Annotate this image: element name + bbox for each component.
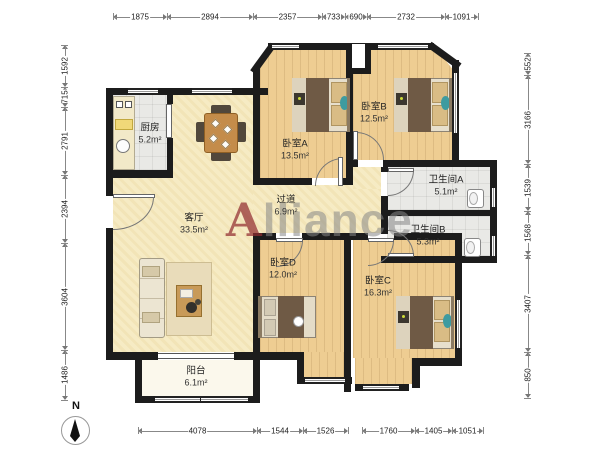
cutting-board bbox=[115, 119, 133, 130]
dim-top-0: 1875 bbox=[113, 12, 167, 22]
dim-right-1: 3166 bbox=[523, 75, 533, 164]
dining-table bbox=[204, 113, 238, 153]
tray bbox=[180, 289, 193, 298]
dim-tick bbox=[61, 87, 68, 88]
dim-tick bbox=[348, 427, 349, 434]
dim-bottom-2: 1526 bbox=[303, 426, 348, 436]
dim-tick bbox=[478, 13, 479, 20]
room-bedroom-a-label: 卧室A13.5m² bbox=[281, 139, 309, 162]
dim-left-0: 1592 bbox=[60, 45, 70, 87]
wall bbox=[455, 348, 462, 366]
wall bbox=[106, 170, 173, 178]
room-bedroom-c-floor bbox=[355, 358, 412, 384]
window bbox=[155, 396, 248, 403]
dim-top-1: 2894 bbox=[167, 12, 253, 22]
wall bbox=[135, 396, 155, 403]
wall bbox=[412, 358, 420, 388]
wall bbox=[383, 160, 497, 167]
dim-tick bbox=[113, 13, 114, 20]
dim-tick bbox=[303, 427, 304, 434]
dim-tick bbox=[415, 427, 416, 434]
dim-bottom-3: 1760 bbox=[362, 426, 415, 436]
window bbox=[452, 73, 459, 133]
dim-tick bbox=[257, 427, 258, 434]
room-hallway-label: 过道6.9m² bbox=[274, 195, 297, 218]
tv-light bbox=[298, 97, 301, 100]
wall bbox=[344, 358, 351, 392]
bath-a-door-leaf bbox=[388, 168, 414, 172]
wall bbox=[490, 207, 497, 236]
window bbox=[490, 188, 497, 207]
dim-tick bbox=[253, 13, 254, 20]
window bbox=[378, 43, 428, 50]
dim-tick bbox=[61, 175, 68, 176]
headboard bbox=[258, 296, 262, 338]
dim-tick bbox=[61, 243, 68, 244]
north-arrow-icon bbox=[70, 419, 80, 436]
dim-tick bbox=[524, 255, 531, 256]
dim-tick bbox=[167, 13, 168, 20]
wall bbox=[253, 352, 303, 360]
wall bbox=[234, 352, 260, 360]
dim-tick bbox=[61, 350, 68, 351]
bed-blanket bbox=[408, 78, 431, 132]
wall bbox=[253, 68, 260, 185]
wall bbox=[344, 240, 351, 358]
dim-tick bbox=[61, 107, 68, 108]
window bbox=[455, 300, 462, 348]
dim-top-6: 1091 bbox=[445, 12, 478, 22]
stove-burner bbox=[116, 101, 123, 108]
room-kitchen-label: 厨房5.2m² bbox=[138, 123, 161, 146]
pillow bbox=[264, 319, 276, 336]
dim-right-2: 1539 bbox=[523, 164, 533, 211]
headboard bbox=[449, 78, 452, 132]
wall bbox=[106, 228, 113, 360]
wall bbox=[399, 384, 409, 391]
room-bath-b-label: 卫生间B5.3m² bbox=[411, 225, 446, 248]
dim-tick bbox=[138, 427, 139, 434]
dim-right-5: 850 bbox=[523, 352, 533, 398]
dim-tick bbox=[367, 13, 368, 20]
window bbox=[272, 43, 299, 50]
floor-plan: Alliance 厨房5.2m² 客厅33.5m² 卧室A13.5m² 卧室B1… bbox=[0, 0, 600, 450]
dim-tick bbox=[524, 211, 531, 212]
dim-tick bbox=[524, 53, 531, 54]
window bbox=[305, 377, 345, 384]
bedroom-a-door-leaf bbox=[338, 157, 343, 186]
bed-blanket bbox=[410, 296, 433, 349]
wall bbox=[253, 178, 312, 185]
dim-top-5: 2732 bbox=[367, 12, 445, 22]
bed-bench bbox=[292, 78, 306, 132]
dim-left-3: 2394 bbox=[60, 175, 70, 243]
dim-tick bbox=[483, 427, 484, 434]
dim-left-1: 715 bbox=[60, 87, 70, 107]
dim-left-2: 2791 bbox=[60, 107, 70, 175]
dim-bottom-4: 1405 bbox=[415, 426, 452, 436]
watermark-logo: Alliance bbox=[226, 193, 413, 247]
tv-light bbox=[400, 97, 403, 100]
room-bedroom-d-label: 卧室D12.0m² bbox=[269, 258, 297, 281]
window bbox=[490, 236, 497, 256]
watermark-letter-a: A bbox=[226, 193, 263, 247]
wall bbox=[346, 160, 358, 167]
window bbox=[128, 88, 158, 95]
dim-right-4: 3407 bbox=[523, 255, 533, 352]
tv-light bbox=[402, 315, 405, 318]
sofa-pillow bbox=[142, 312, 160, 323]
dim-right-3: 1568 bbox=[523, 211, 533, 255]
dim-bottom-0: 4078 bbox=[138, 426, 257, 436]
wall bbox=[106, 352, 158, 360]
wall bbox=[455, 240, 462, 300]
pillow bbox=[264, 299, 276, 316]
wall bbox=[452, 60, 459, 73]
wall bbox=[106, 88, 113, 196]
wall bbox=[381, 167, 388, 172]
teacup bbox=[195, 299, 201, 305]
headboard bbox=[347, 78, 350, 132]
wall bbox=[355, 384, 363, 391]
room-hallway-floor bbox=[353, 167, 381, 189]
window bbox=[192, 88, 232, 95]
dim-top-3: 733 bbox=[322, 12, 345, 22]
toilet-bowl bbox=[466, 241, 475, 254]
balcony-sliding-door bbox=[158, 353, 234, 359]
window-mullion bbox=[200, 396, 201, 403]
bedroom-b-door-leaf bbox=[353, 131, 358, 160]
north-arrow-tail-icon bbox=[70, 436, 80, 442]
dim-tick bbox=[445, 13, 446, 20]
dim-tick bbox=[61, 45, 68, 46]
room-bedroom-d-floor bbox=[303, 352, 348, 377]
dim-top-2: 2357 bbox=[253, 12, 322, 22]
wall bbox=[167, 95, 173, 104]
dim-tick bbox=[524, 164, 531, 165]
dim-tick bbox=[362, 427, 363, 434]
room-bedroom-b-label: 卧室B12.5m² bbox=[360, 102, 388, 125]
dim-tick bbox=[524, 75, 531, 76]
bath-b-door-leaf bbox=[388, 253, 414, 257]
wall bbox=[346, 68, 371, 74]
room-living-label: 客厅33.5m² bbox=[180, 213, 208, 236]
wall bbox=[248, 396, 260, 403]
wall bbox=[365, 44, 371, 70]
sofa-cushion-line bbox=[140, 278, 164, 279]
dim-left-5: 1486 bbox=[60, 350, 70, 400]
stove-burner bbox=[125, 101, 132, 108]
bed-blanket bbox=[306, 78, 329, 132]
north-label: N bbox=[62, 400, 90, 412]
dim-tick bbox=[524, 398, 531, 399]
dim-tick bbox=[345, 13, 346, 20]
dim-right-0: 552 bbox=[523, 53, 533, 75]
kitchen-sink bbox=[116, 139, 130, 153]
wall bbox=[381, 256, 497, 263]
wall bbox=[297, 377, 305, 384]
kitchen-door-leaf bbox=[166, 104, 172, 138]
bed-bench bbox=[394, 78, 408, 132]
room-bedroom-c-label: 卧室C16.3m² bbox=[364, 276, 392, 299]
dim-bottom-5: 1051 bbox=[452, 426, 483, 436]
window bbox=[363, 384, 399, 391]
dim-left-4: 3604 bbox=[60, 243, 70, 350]
bed-dish bbox=[293, 316, 304, 327]
sofa-pillow bbox=[142, 266, 160, 277]
room-bath-a-label: 卫生间A5.1m² bbox=[429, 175, 464, 198]
dim-tick bbox=[452, 427, 453, 434]
toilet-bowl bbox=[469, 192, 478, 205]
room-balcony-label: 阳台6.1m² bbox=[184, 366, 207, 389]
dim-tick bbox=[322, 13, 323, 20]
headboard bbox=[451, 296, 454, 349]
shaft-notch bbox=[352, 44, 365, 68]
dim-tick bbox=[524, 352, 531, 353]
dim-bottom-1: 1544 bbox=[257, 426, 303, 436]
wall bbox=[490, 167, 497, 188]
sofa-cushion-line bbox=[140, 298, 164, 299]
dim-top-4: 690 bbox=[345, 12, 367, 22]
